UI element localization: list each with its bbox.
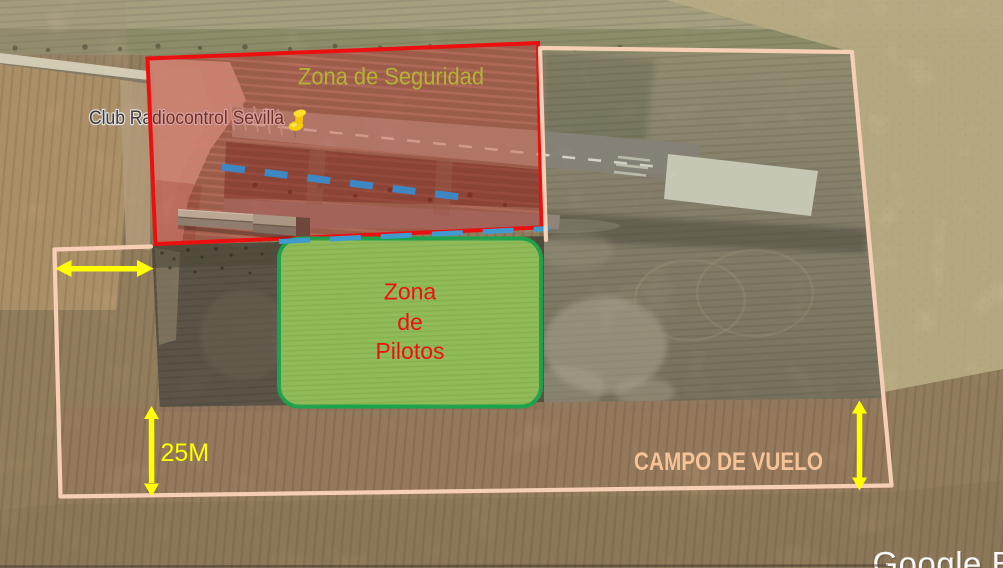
svg-text:CAMPO DE VUELO: CAMPO DE VUELO [634,448,823,476]
svg-text:Google Ea: Google Ea [873,545,1003,568]
svg-text:de: de [397,309,423,335]
svg-text:25M: 25M [161,439,210,467]
svg-text:Zona: Zona [384,279,437,305]
svg-text:Zona de Seguridad: Zona de Seguridad [298,64,484,91]
svg-text:Pilotos: Pilotos [375,338,444,364]
